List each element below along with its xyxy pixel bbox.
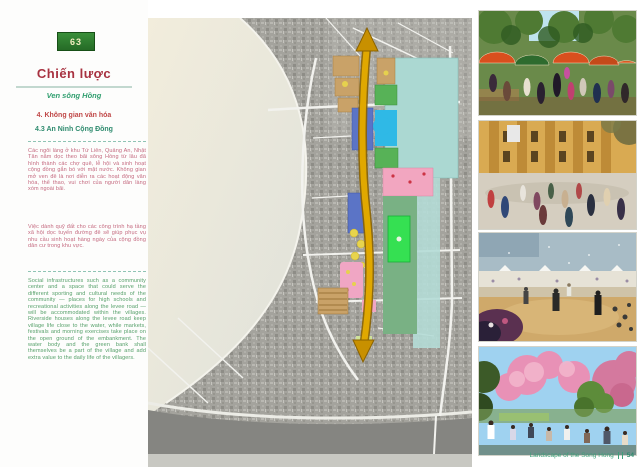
parcel-green-1 xyxy=(375,85,397,105)
dashed-divider xyxy=(28,141,146,142)
photo-street-market xyxy=(478,10,637,116)
body-paragraph-vi-2: Việc dành quỹ đất cho các công trình hạ … xyxy=(28,224,146,250)
parcel-teal-lower xyxy=(413,178,440,348)
page-footer: Landscape of the Song Hong 54 xyxy=(530,452,634,459)
map-image xyxy=(148,18,472,467)
sidebar: 63 Chiến lược Ven sông Hồng 4. Không gia… xyxy=(0,0,148,467)
dashed-divider-2 xyxy=(28,271,146,272)
parcel-green-2 xyxy=(375,148,398,168)
document-page: 63 Chiến lược Ven sông Hồng 4. Không gia… xyxy=(0,0,640,467)
photo-cherry-blossoms xyxy=(478,346,637,456)
section-heading-secondary: 4.3 An Ninh Cộng Đồng xyxy=(0,126,148,133)
master-plan-map xyxy=(148,18,472,467)
parcel-pink-strip xyxy=(383,168,433,196)
page-number: 54 xyxy=(627,452,634,459)
title-divider xyxy=(16,86,132,88)
section-heading-primary: 4. Không gian văn hóa xyxy=(0,112,148,119)
body-paragraph-en: Social infrastructures such as a communi… xyxy=(28,278,146,361)
section-badge-number: 63 xyxy=(70,37,82,47)
page-subtitle: Ven sông Hồng xyxy=(0,91,148,100)
photo-column xyxy=(478,0,636,467)
photo-riverside-festival xyxy=(478,232,637,342)
page-title: Chiến lược xyxy=(0,66,148,81)
footer-caption: Landscape of the Song Hong xyxy=(530,452,614,459)
section-badge: 63 xyxy=(57,32,95,51)
body-paragraph-vi-1: Các ngôi làng ở khu Tứ Liên, Quảng An, N… xyxy=(28,148,146,193)
far-bank xyxy=(148,454,472,467)
parcel-tan-hatched xyxy=(318,288,348,314)
photo-courtyard-exercise xyxy=(478,120,637,230)
footer-divider xyxy=(618,452,623,459)
